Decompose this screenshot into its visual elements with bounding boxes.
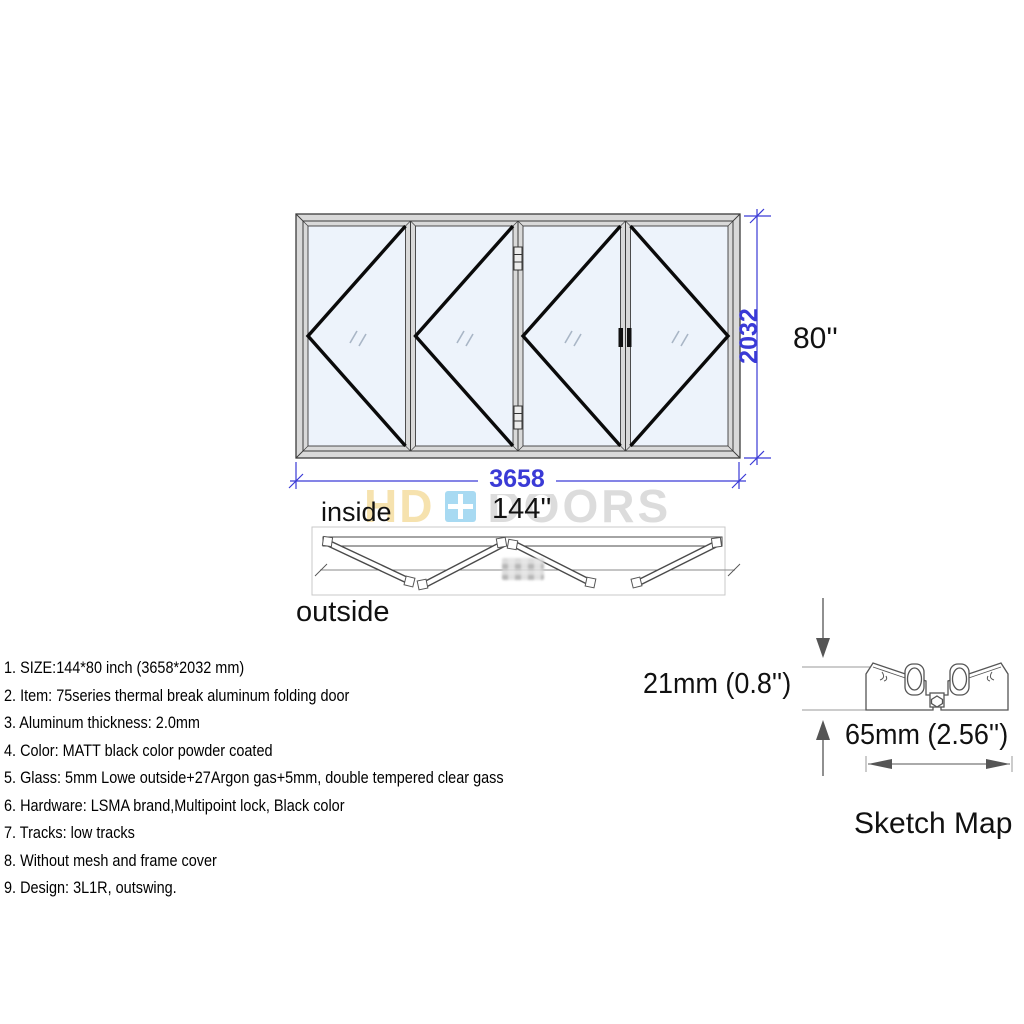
roller-left <box>908 668 922 690</box>
sketch-map-title: Sketch Map <box>854 807 1012 841</box>
spec-item: 2. Item: 75series thermal break aluminum… <box>4 682 504 710</box>
track-width-label: 65mm (2.56'') <box>845 719 1008 752</box>
dimension-width-mm: 3658 <box>478 465 556 494</box>
spec-list: 1. SIZE:144*80 inch (3658*2032 mm) 2. It… <box>4 654 592 902</box>
glass-pane-1 <box>308 226 406 446</box>
spec-item: 9. Design: 3L1R, outswing. <box>4 874 504 902</box>
glass-pane-3 <box>523 226 621 446</box>
spec-item: 7. Tracks: low tracks <box>4 819 504 847</box>
dimension-width-inch: 144'' <box>492 493 551 526</box>
track-height-label: 21mm (0.8'') <box>643 668 791 701</box>
dimension-height-inch: 80'' <box>793 322 838 356</box>
spec-item: 1. SIZE:144*80 inch (3658*2032 mm) <box>4 654 504 682</box>
spec-item: 6. Hardware: LSMA brand,Multipoint lock,… <box>4 792 504 820</box>
spec-item: 4. Color: MATT black color powder coated <box>4 737 504 765</box>
track-profile <box>866 663 1008 710</box>
roller-right <box>953 668 967 690</box>
glass-pane-4 <box>631 226 729 446</box>
door-front-view-drawing <box>285 205 785 505</box>
inside-label: inside <box>321 497 392 528</box>
spec-item: 5. Glass: 5mm Lowe outside+27Argon gas+5… <box>4 764 504 792</box>
blurred-watermark-patch <box>502 558 544 580</box>
spec-item: 8. Without mesh and frame cover <box>4 847 504 875</box>
dimension-height-mm: 2032 <box>736 306 762 366</box>
window-icon <box>445 491 476 522</box>
spec-item: 3. Aluminum thickness: 2.0mm <box>4 709 504 737</box>
glass-pane-2 <box>416 226 514 446</box>
width-dimension-arrows <box>866 756 1012 772</box>
